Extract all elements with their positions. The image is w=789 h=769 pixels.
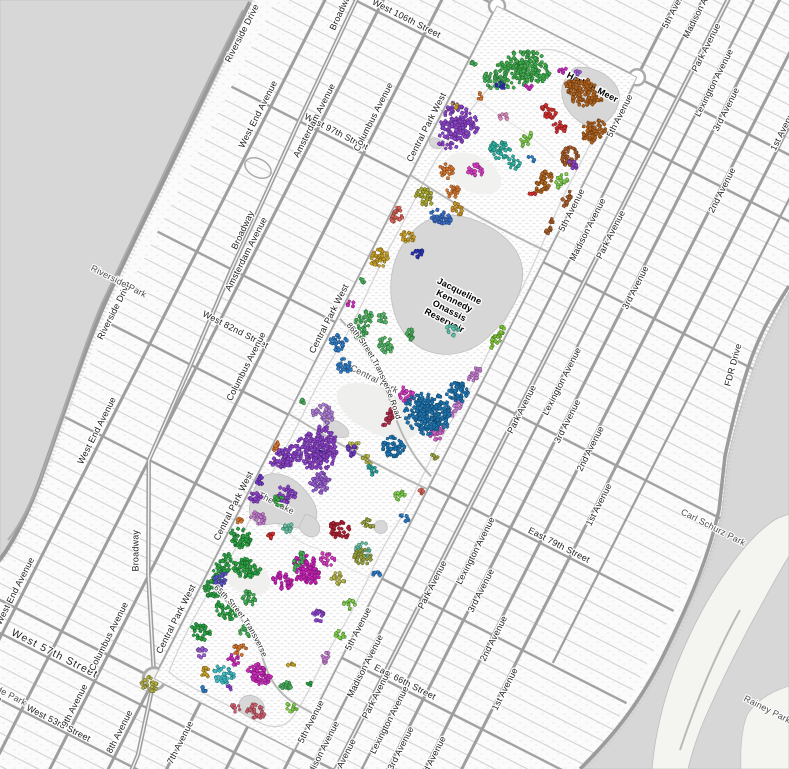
avenue-label: Broadway (131, 530, 141, 572)
map-viewport[interactable]: West 106th StreetWest 97th StreetWest 82… (0, 0, 789, 769)
map-canvas[interactable]: West 106th StreetWest 97th StreetWest 82… (0, 0, 789, 769)
